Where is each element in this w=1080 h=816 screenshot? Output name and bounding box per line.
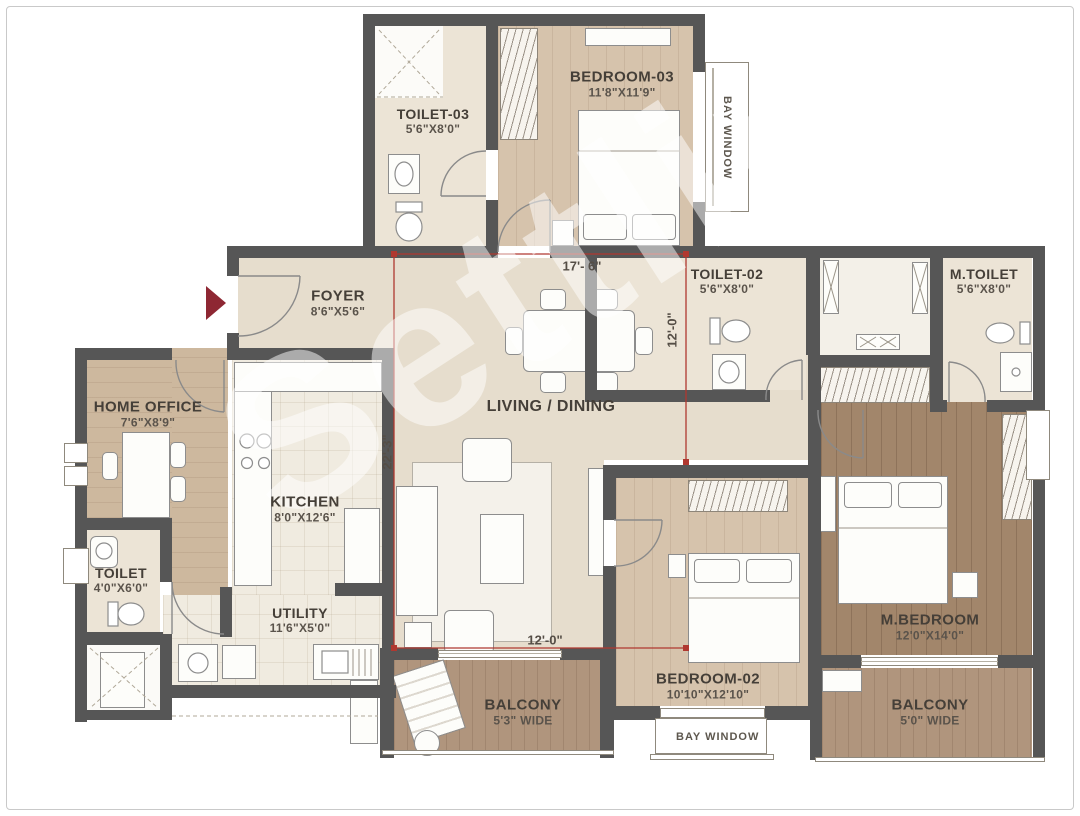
room-dims: 8'6"X5'6"	[311, 305, 366, 319]
kitchen-counter	[234, 362, 272, 586]
room-label-toilet3: TOILET-03 5'6"X8'0"	[397, 106, 470, 136]
wall	[160, 645, 172, 715]
wall	[498, 14, 705, 26]
shower-tray	[1000, 352, 1032, 392]
wall	[227, 246, 239, 276]
room-dims: 5'6"X8'0"	[950, 282, 1018, 296]
room-name: UTILITY	[270, 605, 331, 621]
room-name: TOILET-03	[397, 106, 470, 122]
room-name: BEDROOM-03	[570, 69, 674, 86]
room-name: TOILET-02	[691, 266, 764, 282]
wall	[560, 648, 602, 660]
wall	[380, 648, 394, 758]
bay-window-sill	[650, 754, 774, 760]
dimension-bottom: 12'-0"	[527, 633, 562, 648]
wardrobe	[818, 367, 930, 403]
washbasin	[388, 154, 420, 194]
wall	[382, 348, 394, 648]
room-label-foyer: FOYER 8'6"X5'6"	[311, 288, 366, 319]
dimension-right: 12'-0"	[665, 312, 680, 347]
wall	[603, 566, 616, 718]
duct-bench	[856, 334, 900, 350]
office-chair	[170, 476, 186, 502]
corridor-floor	[172, 348, 228, 598]
wall	[613, 706, 660, 720]
bedside-table	[552, 220, 574, 246]
room-name: M.BEDROOM	[881, 612, 980, 629]
window	[64, 466, 88, 486]
wall	[930, 400, 947, 412]
tv-unit	[588, 468, 604, 576]
wall	[930, 252, 943, 412]
room-label-bedroom2: BEDROOM-02 10'10"X12'10"	[656, 671, 760, 702]
wardrobe	[500, 28, 538, 140]
wall	[227, 348, 394, 360]
bedside-table	[668, 554, 686, 578]
room-dims: 7'6"X8'9"	[94, 416, 203, 430]
window	[1026, 410, 1050, 480]
window	[660, 708, 765, 718]
refrigerator	[344, 508, 380, 586]
dining-chair	[635, 327, 653, 355]
side-table	[952, 572, 978, 598]
balcony-railing	[815, 757, 1045, 762]
room-name: BALCONY	[892, 697, 969, 714]
duct	[912, 262, 928, 314]
room-label-kitchen: KITCHEN 8'0"X12'6"	[270, 494, 339, 525]
window-glass-line	[712, 68, 714, 206]
window-glass-line	[861, 661, 998, 662]
room-dims: 8'0"X12'6"	[270, 511, 339, 525]
wall	[394, 648, 438, 660]
dining-chair	[505, 327, 523, 355]
pillow	[632, 214, 676, 240]
wall	[87, 518, 167, 530]
dimension-top: 17'- 6"	[563, 259, 602, 274]
dresser	[585, 28, 671, 46]
kitchen-counter-top	[234, 362, 382, 392]
room-label-toilet2: TOILET-02 5'6"X8'0"	[691, 266, 764, 296]
armchair	[462, 438, 512, 482]
room-name: HOME OFFICE	[94, 399, 203, 416]
room-dims: 11'6"X5'0"	[270, 621, 331, 635]
room-label-toilet: TOILET 4'0"X6'0"	[94, 565, 149, 595]
wall	[603, 465, 808, 478]
room-dims: 10'10"X12'10"	[656, 688, 760, 702]
room-name: FOYER	[311, 288, 366, 305]
office-chair	[170, 442, 186, 468]
bay-window-label-right: BAY WINDOW	[721, 80, 733, 196]
room-label-mbedroom: M.BEDROOM 12'0"X14'0"	[881, 612, 980, 643]
wall	[75, 348, 87, 722]
dimension-left: 22'-3"	[380, 434, 395, 469]
wall	[363, 14, 500, 26]
window-glass-line	[438, 653, 562, 654]
wall	[80, 632, 163, 645]
room-label-balcony2: BALCONY 5'0" WIDE	[892, 697, 969, 728]
room-label-utility: UTILITY 11'6"X5'0"	[270, 605, 331, 635]
room-dims: 5'0" WIDE	[892, 714, 969, 728]
wall	[78, 348, 172, 360]
sofa	[396, 486, 438, 616]
room-name: TOILET	[94, 565, 149, 581]
room-label-bedroom3: BEDROOM-03 11'8"X11'9"	[570, 69, 674, 100]
balcony-railing	[382, 750, 614, 755]
pillow	[844, 482, 892, 508]
room-name: BEDROOM-02	[656, 671, 760, 688]
room-dims: 4'0"X6'0"	[94, 581, 149, 595]
room-name: LIVING / DINING	[487, 398, 616, 416]
room-dims: 5'6"X8'0"	[397, 122, 470, 136]
wall	[486, 14, 498, 150]
wall	[821, 655, 861, 668]
room-name: KITCHEN	[270, 494, 339, 511]
coffee-table	[480, 514, 524, 584]
dining-chair	[540, 372, 566, 393]
wall	[998, 655, 1033, 668]
room-name: M.TOILET	[950, 266, 1018, 282]
dining-table	[523, 310, 635, 372]
wall	[335, 583, 382, 596]
office-chair	[102, 452, 118, 480]
side-table	[404, 622, 432, 648]
room-label-balcony1: BALCONY 5'3" WIDE	[485, 697, 562, 728]
sliding-door	[438, 650, 562, 658]
window	[64, 443, 88, 463]
room-dims: 5'6"X8'0"	[691, 282, 764, 296]
wall	[810, 655, 822, 760]
pillow	[898, 482, 942, 508]
washbasin	[90, 536, 118, 568]
wall	[160, 518, 172, 582]
wall	[363, 14, 375, 258]
wall	[550, 246, 1045, 258]
washing-machine	[178, 644, 218, 682]
wall	[806, 252, 820, 355]
window	[63, 548, 89, 584]
room-name: BALCONY	[485, 697, 562, 714]
room-dims: 5'3" WIDE	[485, 714, 562, 728]
utility-cabinet	[222, 645, 256, 679]
room-label-mtoilet: M.TOILET 5'6"X8'0"	[950, 266, 1018, 296]
washbasin	[712, 354, 746, 390]
desk	[122, 432, 170, 518]
floor-plan: TOILET-03 5'6"X8'0" BEDROOM-03 11'8"X11'…	[0, 0, 1080, 816]
duct	[823, 260, 839, 314]
wall	[1033, 655, 1045, 760]
shower-area-floor	[375, 26, 443, 98]
room-dims: 11'8"X11'9"	[570, 86, 674, 100]
ac-ledge	[822, 670, 862, 692]
wall	[75, 710, 172, 720]
bay-window-label-bottom: BAY WINDOW	[676, 731, 759, 743]
pillow	[583, 214, 627, 240]
room-dims: 12'0"X14'0"	[881, 629, 980, 643]
pillow	[694, 559, 740, 583]
wall	[163, 685, 396, 698]
wall	[227, 246, 498, 258]
dining-chair	[540, 289, 566, 310]
utility-sink-unit	[313, 644, 379, 680]
wall	[693, 14, 705, 72]
wall	[808, 355, 943, 367]
entrance-arrow-icon	[206, 286, 226, 320]
room-label-home-office: HOME OFFICE 7'6"X8'9"	[94, 399, 203, 430]
wall	[765, 706, 810, 720]
wall	[220, 587, 232, 637]
terrace-seat	[100, 652, 145, 708]
room-label-living: LIVING / DINING	[487, 398, 616, 416]
wardrobe	[688, 480, 788, 512]
pillow	[746, 559, 792, 583]
armchair	[444, 610, 494, 654]
